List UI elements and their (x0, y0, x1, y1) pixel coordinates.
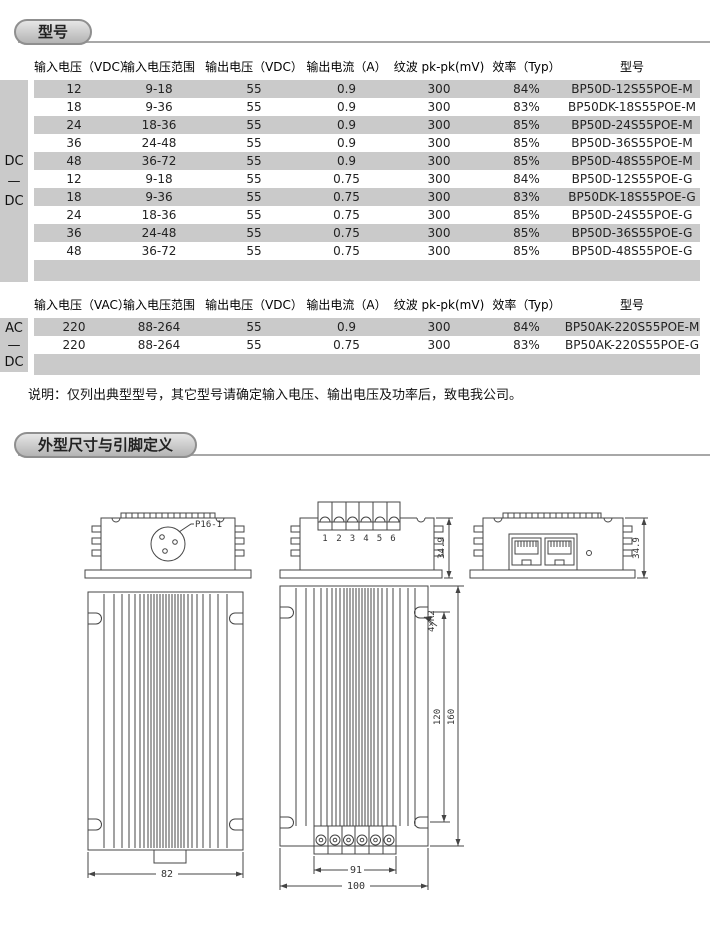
table-cell: 300 (389, 116, 489, 134)
section-title: 外型尺寸与引脚定义 (38, 436, 173, 454)
table-cell: 88-264 (114, 336, 204, 354)
table-cell: 36 (34, 134, 114, 152)
col-header-model: 型号 (564, 290, 700, 318)
datasheet-page: 型号 DC — DC 输入电压（VDC） 输入电压范围 输出电压（VDC） 输出… (0, 0, 720, 933)
table-cell: 83% (489, 98, 564, 116)
dc-dc-model-table: 输入电压（VDC） 输入电压范围 输出电压（VDC） 输出电流（A） 纹波 pk… (34, 52, 700, 281)
table-cell: 220 (34, 336, 114, 354)
table-cell: 88-264 (114, 318, 204, 336)
table-cell: 24 (34, 116, 114, 134)
table-cell: 55 (204, 80, 304, 98)
table-cell: 300 (389, 206, 489, 224)
table-cell: 18 (34, 98, 114, 116)
type-label-top: DC (4, 154, 23, 169)
table-row: 189-36550.930083%BP50DK-18S55POE-M (34, 98, 700, 116)
table-cell: BP50D-24S55POE-M (564, 116, 700, 134)
table-cell: BP50D-12S55POE-G (564, 170, 700, 188)
table-cell: 85% (489, 134, 564, 152)
table-cell: 83% (489, 188, 564, 206)
table-cell: 0.75 (304, 170, 389, 188)
table-cell: 55 (204, 134, 304, 152)
table-cell: 83% (489, 336, 564, 354)
table-cell: 220 (34, 318, 114, 336)
terminal-number: 1 (322, 534, 327, 544)
table-cell: 300 (389, 224, 489, 242)
table-cell: 84% (489, 318, 564, 336)
table-cell: 48 (34, 152, 114, 170)
connector-boss (154, 850, 186, 863)
right-fins (623, 526, 632, 556)
table-row: 22088-264550.930084%BP50AK-220S55POE-M (34, 318, 700, 336)
table-cell: 0.75 (304, 206, 389, 224)
table-row: 2418-36550.930085%BP50D-24S55POE-M (34, 116, 700, 134)
section-divider-rule (18, 41, 710, 43)
table-cell: 9-36 (114, 188, 204, 206)
comb-teeth (126, 513, 210, 518)
col-header-efficiency: 效率（Typ） (489, 52, 564, 80)
table-cell: 36 (34, 224, 114, 242)
table-cell: 55 (204, 336, 304, 354)
terminal-number: 3 (350, 534, 355, 544)
table-cell: 55 (204, 188, 304, 206)
body-outline (300, 518, 434, 570)
table-cell: BP50AK-220S55POE-M (564, 318, 700, 336)
table-cell: 84% (489, 170, 564, 188)
table-cell: 55 (204, 116, 304, 134)
table-row: 129-18550.930084%BP50D-12S55POE-M (34, 80, 700, 98)
table-cell: 85% (489, 116, 564, 134)
table-cell: 9-18 (114, 170, 204, 188)
table-header-row: 输入电压（VAC） 输入电压范围 输出电压（VDC） 输出电流（A） 纹波 pk… (34, 290, 700, 318)
col-header-input-range: 输入电压范围 (114, 52, 204, 80)
table-cell: 18-36 (114, 206, 204, 224)
table-cell: 24-48 (114, 134, 204, 152)
table-cell: 9-18 (114, 80, 204, 98)
table-cell: 300 (389, 318, 489, 336)
comb-teeth (508, 513, 598, 518)
table-row: 2418-36550.7530085%BP50D-24S55POE-G (34, 206, 700, 224)
table-cell: 24 (34, 206, 114, 224)
table-cell: 0.75 (304, 242, 389, 260)
table-cell: 18-36 (114, 116, 204, 134)
table-cell: 300 (389, 98, 489, 116)
table-footer-band (34, 260, 700, 281)
terminal-block-icon (318, 502, 400, 530)
right-mounting-slots (415, 607, 429, 828)
col-header-model: 型号 (564, 52, 700, 80)
col-header-efficiency: 效率（Typ） (489, 290, 564, 318)
dc-dc-table-block: DC — DC 输入电压（VDC） 输入电压范围 输出电压（VDC） 输出电流（… (0, 52, 700, 282)
height-dimension: 34.9 (436, 518, 453, 578)
col-header-output-current: 输出电流（A） (304, 52, 389, 80)
col-header-input-range: 输入电压范围 (114, 290, 204, 318)
top-view-plain-drawing: 82 (82, 586, 257, 886)
left-mounting-slots (280, 607, 294, 828)
converter-type-label-dc: DC — DC (0, 80, 28, 282)
table-cell: 300 (389, 170, 489, 188)
table-cell: 12 (34, 170, 114, 188)
table-cell: 48 (34, 242, 114, 260)
type-label-bottom: DC (4, 355, 23, 370)
table-cell: 85% (489, 152, 564, 170)
height-dimension: 34.9 (625, 518, 648, 578)
corner-notches (494, 518, 612, 522)
corner-slot-callout: 4×R2 (424, 610, 437, 632)
table-cell: 55 (204, 206, 304, 224)
terminal-number: 4 (363, 534, 368, 544)
converter-type-label-ac: AC — DC (0, 318, 28, 372)
terminal-number: 6 (390, 534, 395, 544)
note-text: 说明：仅列出典型型号，其它型号请确定输入电压、输出电压及功率后，致电我公司。 (28, 384, 522, 403)
table-cell: 300 (389, 336, 489, 354)
table-row: 4836-72550.7530085%BP50D-48S55POE-G (34, 242, 700, 260)
dimension-label: 120 (433, 709, 443, 725)
heatsink-fins (296, 588, 415, 826)
side-view-rj45-drawing: 34.9 (465, 496, 653, 582)
table-cell: 85% (489, 206, 564, 224)
table-cell: 0.9 (304, 134, 389, 152)
table-cell: BP50D-48S55POE-G (564, 242, 700, 260)
table-cell: BP50D-48S55POE-M (564, 152, 700, 170)
left-fins (291, 526, 300, 556)
table-cell: 84% (489, 80, 564, 98)
connector-label: P16-1 (195, 520, 222, 530)
left-fins (474, 526, 483, 556)
table-cell: 0.9 (304, 80, 389, 98)
table-cell: 300 (389, 188, 489, 206)
p16-connector-icon (151, 524, 194, 561)
table-cell: 0.9 (304, 318, 389, 336)
base-plate (470, 570, 635, 578)
terminal-number: 2 (336, 534, 341, 544)
top-view-terminal-drawing: 91 100 120 160 4×R2 (270, 580, 505, 905)
indicator-hole (587, 551, 592, 556)
table-cell: 300 (389, 134, 489, 152)
table-cell: BP50D-36S55POE-M (564, 134, 700, 152)
table-cell: 55 (204, 152, 304, 170)
table-row: 22088-264550.7530083%BP50AK-220S55POE-G (34, 336, 700, 354)
table-cell: 300 (389, 242, 489, 260)
section-title: 型号 (38, 23, 68, 41)
table-cell: 36-72 (114, 152, 204, 170)
table-cell: BP50D-24S55POE-G (564, 206, 700, 224)
terminal-block-icon (314, 826, 396, 854)
table-header-row: 输入电压（VDC） 输入电压范围 输出电压（VDC） 输出电流（A） 纹波 pk… (34, 52, 700, 80)
rj45-jack-icon (545, 538, 574, 565)
section-tab-dimensions: 外型尺寸与引脚定义 (14, 432, 197, 458)
table-cell: 9-36 (114, 98, 204, 116)
col-header-output-voltage: 输出电压（VDC） (204, 52, 304, 80)
table-row: 189-36550.7530083%BP50DK-18S55POE-G (34, 188, 700, 206)
dimension-label: 34.9 (437, 537, 447, 559)
table-cell: 0.75 (304, 336, 389, 354)
width-dimension: 82 (88, 852, 243, 880)
table-cell: 12 (34, 80, 114, 98)
corner-notch (417, 518, 425, 522)
table-footer-band (34, 354, 700, 375)
base-plate (85, 570, 251, 578)
col-header-input-voltage: 输入电压（VDC） (34, 52, 114, 80)
terminal-width-dimension: 91 (314, 856, 396, 876)
table-cell: BP50DK-18S55POE-G (564, 188, 700, 206)
body-outline (483, 518, 623, 570)
dimension-label: 4×R2 (427, 610, 437, 632)
type-label-top: AC (5, 321, 23, 336)
col-header-ripple: 纹波 pk-pk(mV) (389, 290, 489, 318)
col-header-output-current: 输出电流（A） (304, 290, 389, 318)
table-cell: 0.75 (304, 188, 389, 206)
table-cell: 300 (389, 152, 489, 170)
body-outline (280, 586, 428, 846)
table-row: 3624-48550.7530085%BP50D-36S55POE-G (34, 224, 700, 242)
table-cell: 55 (204, 98, 304, 116)
ac-dc-table-block: AC — DC 输入电压（VAC） 输入电压范围 输出电压（VDC） 输出电流（… (0, 290, 700, 372)
table-cell: BP50D-12S55POE-M (564, 80, 700, 98)
table-row: 129-18550.7530084%BP50D-12S55POE-G (34, 170, 700, 188)
table-cell: 24-48 (114, 224, 204, 242)
table-cell: 85% (489, 224, 564, 242)
table-cell: 0.9 (304, 152, 389, 170)
table-cell: 55 (204, 318, 304, 336)
right-mounting-slots (230, 613, 244, 830)
table-cell: BP50AK-220S55POE-G (564, 336, 700, 354)
terminal-number: 5 (377, 534, 382, 544)
table-cell: 300 (389, 80, 489, 98)
base-plate (280, 570, 442, 578)
ac-dc-model-table: 输入电压（VAC） 输入电压范围 输出电压（VDC） 输出电流（A） 纹波 pk… (34, 290, 700, 375)
table-row: 4836-72550.930085%BP50D-48S55POE-M (34, 152, 700, 170)
dimension-label: 91 (350, 865, 362, 876)
table-cell: 18 (34, 188, 114, 206)
dimension-label: 100 (347, 881, 365, 892)
table-cell: 55 (204, 242, 304, 260)
section-tab-models: 型号 (14, 19, 92, 45)
table-cell: 55 (204, 224, 304, 242)
table-cell: 85% (489, 242, 564, 260)
side-view-connector-drawing: P16-1 (83, 496, 255, 582)
col-header-ripple: 纹波 pk-pk(mV) (389, 52, 489, 80)
table-row: 3624-48550.930085%BP50D-36S55POE-M (34, 134, 700, 152)
left-mounting-slots (88, 613, 102, 830)
side-view-terminal-drawing: 1 2 3 4 5 6 34.9 (278, 496, 458, 582)
right-fins (235, 526, 244, 556)
heatsink-fins (104, 594, 227, 848)
table-cell: 0.9 (304, 116, 389, 134)
table-cell: 36-72 (114, 242, 204, 260)
type-label-dash: — (8, 174, 21, 189)
col-header-output-voltage: 输出电压（VDC） (204, 290, 304, 318)
table-cell: BP50D-36S55POE-G (564, 224, 700, 242)
dimension-label: 34.9 (632, 537, 642, 559)
type-label-bottom: DC (4, 194, 23, 209)
table-cell: 55 (204, 170, 304, 188)
dimension-label: 160 (447, 709, 457, 725)
table-cell: BP50DK-18S55POE-M (564, 98, 700, 116)
col-header-input-voltage: 输入电压（VAC） (34, 290, 114, 318)
dimension-label: 82 (161, 869, 173, 880)
type-label-dash: — (8, 338, 21, 353)
table-cell: 0.75 (304, 224, 389, 242)
left-fins (92, 526, 101, 556)
table-cell: 0.9 (304, 98, 389, 116)
